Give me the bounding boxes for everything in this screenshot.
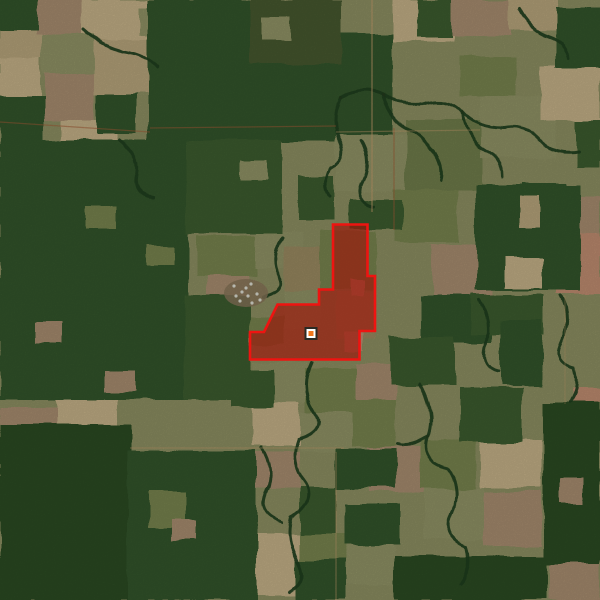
map-viewport[interactable] <box>0 0 600 600</box>
imagery-grain <box>0 0 600 600</box>
location-marker[interactable] <box>305 327 318 340</box>
satellite-map-canvas[interactable] <box>0 0 600 600</box>
